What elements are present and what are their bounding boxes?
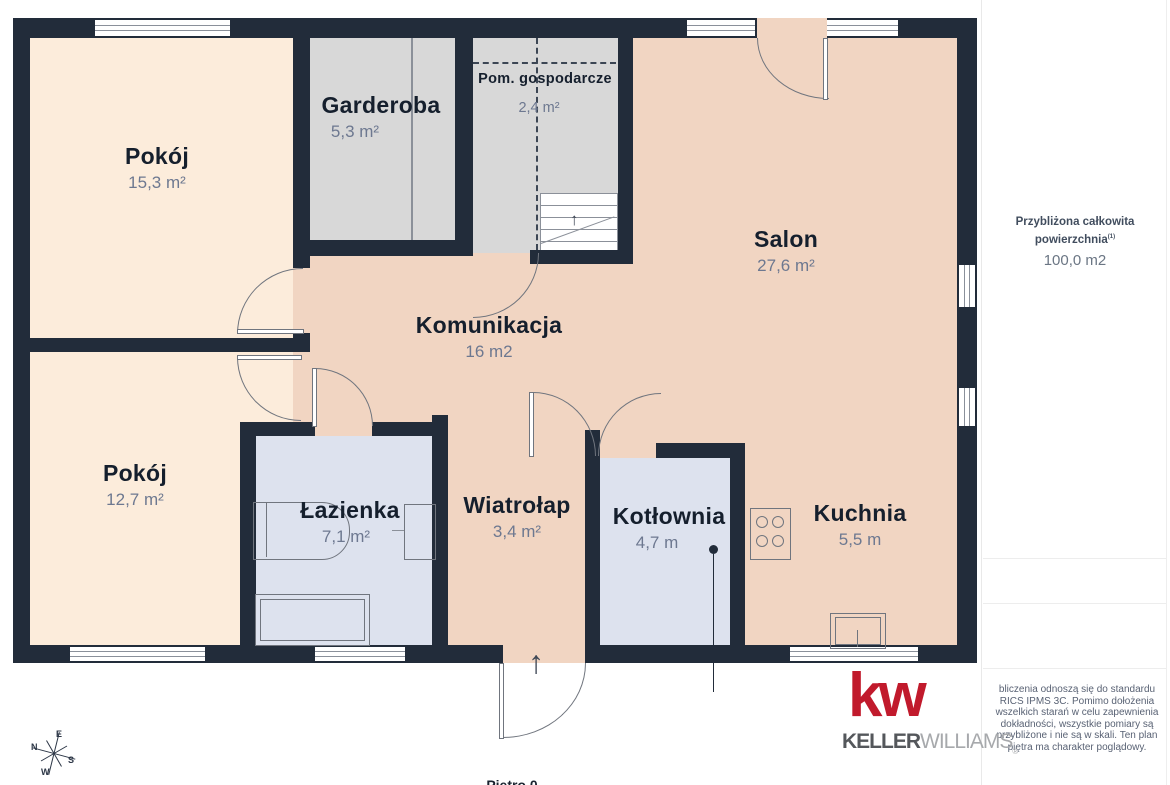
room-name: Komunikacja: [409, 312, 569, 339]
stair-tread: [541, 217, 617, 218]
door-opening: [757, 18, 827, 38]
wall: [530, 250, 633, 264]
shower-tray-inner: [260, 599, 365, 641]
sink-icon: [830, 613, 886, 649]
door-arc: [503, 663, 586, 738]
kw-logo-mark: kw: [848, 664, 923, 728]
room-label-wiatrolap: Wiatrołap 3,4 m²: [437, 492, 597, 542]
room-area: 5,5 m: [780, 530, 940, 550]
window: [959, 388, 975, 426]
room-label-salon: Salon 27,6 m²: [706, 226, 866, 276]
hob-burner: [756, 535, 768, 547]
sidebar-divider: [983, 558, 1166, 559]
room-area: 3,4 m²: [437, 522, 597, 542]
wall: [30, 338, 310, 352]
stairs-arrow-icon: ↑: [570, 210, 579, 230]
window: [687, 20, 755, 36]
compass-w: W: [41, 767, 50, 777]
room-label-garderoba: Garderoba 5,3 m²: [301, 92, 461, 142]
door-leaf: [529, 392, 534, 457]
wall: [310, 240, 472, 256]
room-label-kuchnia: Kuchnia 5,5 m: [780, 500, 940, 550]
room-label-lazienka: Łazienka 7,1 m²: [270, 497, 430, 547]
sidebar-divider: [983, 603, 1166, 604]
room-area: 7,1 m²: [266, 527, 426, 547]
compass-s: S: [68, 755, 74, 765]
window: [790, 647, 918, 661]
total-area-title-line1: Przybliżona całkowita: [1016, 216, 1135, 228]
entrance-arrow-icon: ↑: [528, 644, 544, 681]
sidebar-right-border: [1166, 0, 1167, 785]
room-area: 12,7 m²: [55, 490, 215, 510]
kw-logo-wordmark: KELLERWILLIAMS®: [842, 730, 1018, 756]
room-name: Pokój: [55, 460, 215, 487]
room-area: 2,4 m²: [459, 98, 619, 118]
kw-logo-registered: ®: [1012, 747, 1018, 756]
floor-label-text: Piętro 0: [452, 778, 572, 785]
total-area-title: Przybliżona całkowita powierzchnia(1): [990, 215, 1160, 248]
stair-tread: [541, 241, 617, 242]
window: [70, 647, 205, 661]
room-area: 15,3 m²: [77, 173, 237, 193]
room-name: Pom. gospodarcze: [465, 70, 625, 88]
room-name: Garderoba: [301, 92, 461, 119]
floor-label-clipped: Piętro 0: [452, 778, 572, 785]
room-label-pom-gospodarcze: Pom. gospodarcze 2,4 m²: [465, 70, 625, 118]
room-area: 16 m2: [409, 342, 569, 362]
compass-e: E: [56, 729, 62, 739]
total-area-title-line2: powierzchnia: [1035, 234, 1108, 246]
room-name: Wiatrołap: [437, 492, 597, 519]
door-leaf: [499, 663, 504, 739]
window: [959, 265, 975, 307]
room-label-komunikacja: Komunikacja 16 m2: [409, 312, 569, 362]
door-leaf: [312, 368, 317, 427]
kw-logo: kw KELLERWILLIAMS®: [842, 664, 1022, 769]
door-leaf: [823, 38, 828, 100]
room-name: Pokój: [77, 143, 237, 170]
total-area-value: 100,0 m2: [990, 252, 1160, 269]
stairwell: [540, 193, 618, 251]
room-pom-gospodarcze-floor: [473, 193, 540, 253]
room-area: 4,7 m: [577, 533, 737, 553]
dashed-line: [473, 62, 616, 64]
wall: [13, 18, 30, 663]
room-label-kotlownia: Kotłownia 4,7 m: [589, 503, 749, 553]
room-label-pokoj-2: Pokój 12,7 m²: [55, 460, 215, 510]
window: [315, 647, 405, 661]
room-name: Łazienka: [270, 497, 430, 524]
boiler-line: [713, 554, 714, 692]
door-leaf: [237, 355, 302, 360]
total-area-footnote-marker: (1): [1108, 234, 1115, 240]
wall: [293, 38, 310, 268]
room-label-pokoj-1: Pokój 15,3 m²: [77, 143, 237, 193]
room-area: 5,3 m²: [275, 122, 435, 142]
window: [827, 20, 898, 36]
wall: [957, 18, 977, 663]
entrance-opening: [503, 645, 585, 663]
sink-basin: [835, 617, 881, 645]
room-area: 27,6 m²: [706, 256, 866, 276]
shower-tray: [255, 594, 370, 646]
room-name: Kuchnia: [780, 500, 940, 527]
room-name: Kotłownia: [589, 503, 749, 530]
window: [95, 20, 230, 36]
compass-n: N: [31, 742, 38, 752]
stair-tread: [541, 205, 617, 206]
door-leaf: [237, 329, 304, 334]
floor-plan-page: ↑ ↑: [0, 0, 1170, 785]
kw-logo-keller: KELLER: [842, 730, 920, 753]
hob-burner: [756, 516, 768, 528]
kw-logo-williams: WILLIAMS: [920, 730, 1012, 753]
sink-tap: [857, 630, 858, 647]
room-name: Salon: [706, 226, 866, 253]
